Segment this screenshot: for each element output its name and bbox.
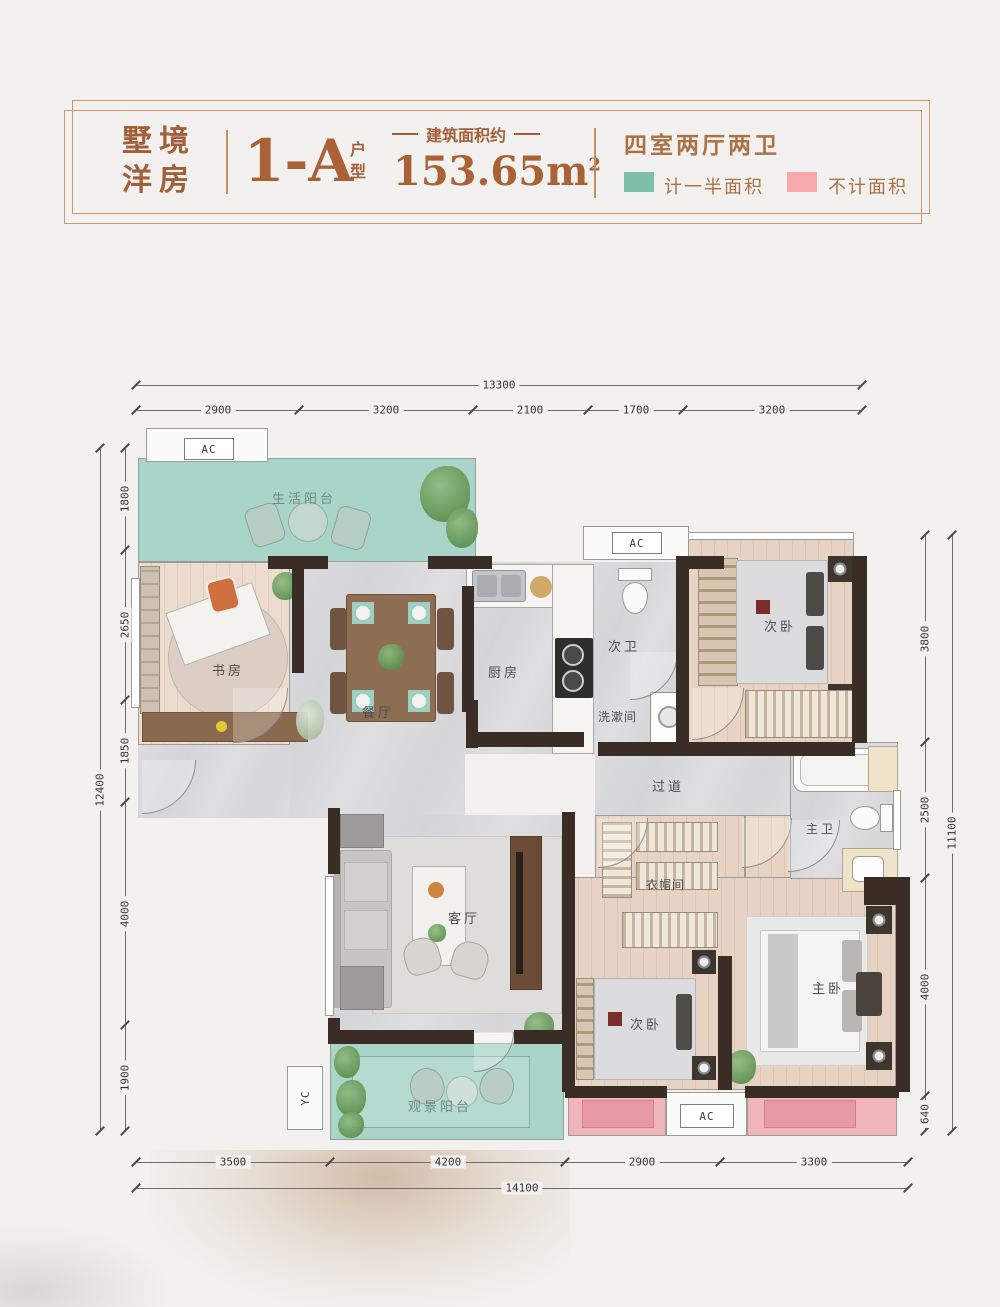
label-life-balcony: 生活阳台 [272, 488, 336, 507]
dash-left [392, 133, 418, 135]
nightstand [828, 556, 852, 582]
cutting-board [530, 576, 552, 598]
wardrobe [636, 822, 718, 852]
brand-line1: 墅境 [122, 122, 196, 161]
burner [562, 644, 584, 666]
tv-cabinet [510, 836, 542, 990]
area-value: 153.65m2 [393, 152, 601, 192]
dim-top-seg: 1700 [619, 404, 654, 417]
dim-line-bottom-segments [136, 1162, 908, 1163]
study-window [131, 578, 140, 708]
dining-centerpiece [378, 644, 404, 670]
plate [356, 606, 370, 620]
tub-cabinet [868, 746, 898, 792]
side-table [340, 966, 384, 1010]
mountain-watermark [150, 1150, 570, 1307]
dim-bottom-seg: 3500 [216, 1156, 251, 1169]
dim-right-total: 11100 [946, 812, 959, 853]
pillow [676, 994, 692, 1050]
wall [514, 1030, 564, 1044]
bedroom-top-window [688, 532, 854, 540]
ac-marker-bottom: AC [680, 1104, 734, 1128]
dining-chair [330, 608, 347, 650]
unit-char1: 户 [350, 140, 366, 162]
dash-right [514, 133, 540, 135]
wall [565, 1086, 667, 1098]
master-bath-window [893, 790, 901, 850]
wall [336, 1030, 474, 1044]
wall [328, 808, 340, 874]
nightstand [866, 906, 892, 934]
label-master-bedroom: 主卧 [812, 978, 844, 997]
area-label: 建筑面积约 [426, 122, 506, 146]
header-divider-2 [594, 128, 596, 198]
dim-top-seg: 3200 [369, 404, 404, 417]
bed-runner [756, 600, 770, 614]
dining-chair [437, 672, 454, 714]
balcony-plant [336, 1080, 366, 1116]
dim-top-total: 13300 [478, 379, 519, 392]
wall [428, 556, 492, 569]
tv [516, 852, 523, 974]
label-dining: 餐厅 [362, 702, 394, 721]
toilet-bowl [850, 806, 880, 830]
wardrobe [622, 912, 718, 948]
side-table [340, 814, 384, 848]
plate [412, 694, 426, 708]
legend-excluded-label: 不计面积 [828, 173, 908, 199]
balcony-plant [446, 508, 478, 548]
living-window [325, 876, 334, 1016]
ac-marker-top-left: AC [184, 438, 234, 460]
dim-left-seg: 1900 [119, 1061, 132, 1096]
pillow [806, 626, 824, 670]
dim-right-seg: 2500 [919, 793, 932, 828]
wall [466, 700, 478, 748]
brand-title: 墅境 洋房 [122, 122, 196, 200]
wall [268, 556, 328, 569]
floorplan-page: 墅境 洋房 1-A 户 型 建筑面积约 153.65m2 四室两厅两卫 计一半面… [0, 0, 1000, 1307]
label-cloakroom: 衣帽间 [646, 876, 685, 893]
dim-right-seg: 4000 [919, 970, 932, 1005]
blanket [768, 934, 798, 1048]
label-corridor: 过道 [652, 776, 684, 795]
wall [676, 558, 689, 750]
wall [598, 742, 855, 756]
wall [745, 1086, 899, 1098]
unit-char2: 型 [350, 162, 366, 184]
sofa-cushion [344, 862, 388, 902]
label-view-balcony: 观景阳台 [408, 1096, 472, 1115]
bed-runner [608, 1012, 622, 1026]
label-second-bath: 次卫 [608, 636, 640, 655]
sofa-cushion [344, 910, 388, 950]
headboard [576, 978, 594, 1080]
plate [412, 606, 426, 620]
dining-floor-plant [296, 700, 324, 740]
burner [562, 670, 584, 692]
area-label-row: 建筑面积约 [392, 122, 540, 146]
dim-bottom-seg: 3300 [797, 1156, 832, 1169]
wall [562, 812, 575, 1092]
unit-code: 1-A [244, 132, 353, 190]
label-living: 客厅 [448, 908, 480, 927]
nightstand [692, 1056, 716, 1080]
label-kitchen: 厨房 [488, 662, 520, 681]
dining-chair [437, 608, 454, 650]
dim-line-top-segments [136, 410, 862, 411]
balcony-table [288, 502, 328, 542]
ac-marker-top-mid: AC [612, 532, 662, 554]
wall [478, 732, 584, 747]
dim-left-seg: 1850 [119, 734, 132, 769]
bedroom-bench [856, 972, 882, 1016]
kitchen-sink-bowl [501, 575, 521, 597]
label-study: 书房 [212, 660, 244, 679]
toilet-tank [618, 568, 652, 581]
dim-top-seg: 2100 [513, 404, 548, 417]
brand-line2: 洋房 [122, 161, 196, 200]
dim-top-seg: 2900 [201, 404, 236, 417]
dim-right-seg: 3800 [919, 622, 932, 657]
dim-left-seg: 2650 [119, 608, 132, 643]
dim-bottom-seg: 2900 [625, 1156, 660, 1169]
pillow [806, 572, 824, 616]
dim-bottom-total: 14100 [501, 1182, 542, 1195]
legend-half-swatch [624, 172, 654, 192]
balcony-plant [334, 1046, 360, 1078]
wall [292, 569, 304, 673]
study-bookshelf [140, 566, 160, 714]
bay-cushion-right [764, 1100, 856, 1128]
wall [852, 556, 867, 743]
header-divider-1 [226, 130, 228, 194]
label-second-bedroom-bottom: 次卧 [630, 1014, 662, 1033]
label-master-bath: 主卫 [806, 820, 836, 837]
dim-top-seg: 3200 [755, 404, 790, 417]
dim-bottom-seg: 4200 [431, 1156, 466, 1169]
unit-type-suffix: 户 型 [350, 140, 366, 183]
legend-excluded-swatch [787, 172, 817, 192]
dim-left-seg: 1800 [119, 482, 132, 517]
table-decor [428, 882, 444, 898]
dining-chair [330, 672, 347, 714]
wall [462, 586, 474, 712]
cabinet-flower [216, 721, 227, 732]
bay-cushion-left [582, 1100, 654, 1128]
toilet-tank [880, 804, 893, 832]
nightstand [692, 950, 716, 974]
dim-left-total: 12400 [94, 769, 107, 810]
nightstand [866, 1042, 892, 1070]
wall [718, 956, 732, 1090]
dim-right-seg: 640 [919, 1100, 932, 1128]
dim-left-seg: 4000 [119, 897, 132, 932]
label-washroom: 洗漱间 [598, 708, 637, 725]
corner-watermark [0, 1225, 170, 1307]
headboard [698, 558, 738, 686]
label-second-bedroom-top: 次卧 [764, 616, 796, 635]
wardrobe [745, 690, 853, 738]
wall [896, 877, 910, 1092]
balcony-plant [338, 1112, 364, 1138]
room-corridor [595, 755, 790, 815]
yc-marker: YC [293, 1086, 317, 1110]
kitchen-sink-bowl [477, 575, 497, 597]
layout-summary: 四室两厅两卫 [624, 126, 780, 160]
legend-half-label: 计一半面积 [664, 173, 764, 199]
